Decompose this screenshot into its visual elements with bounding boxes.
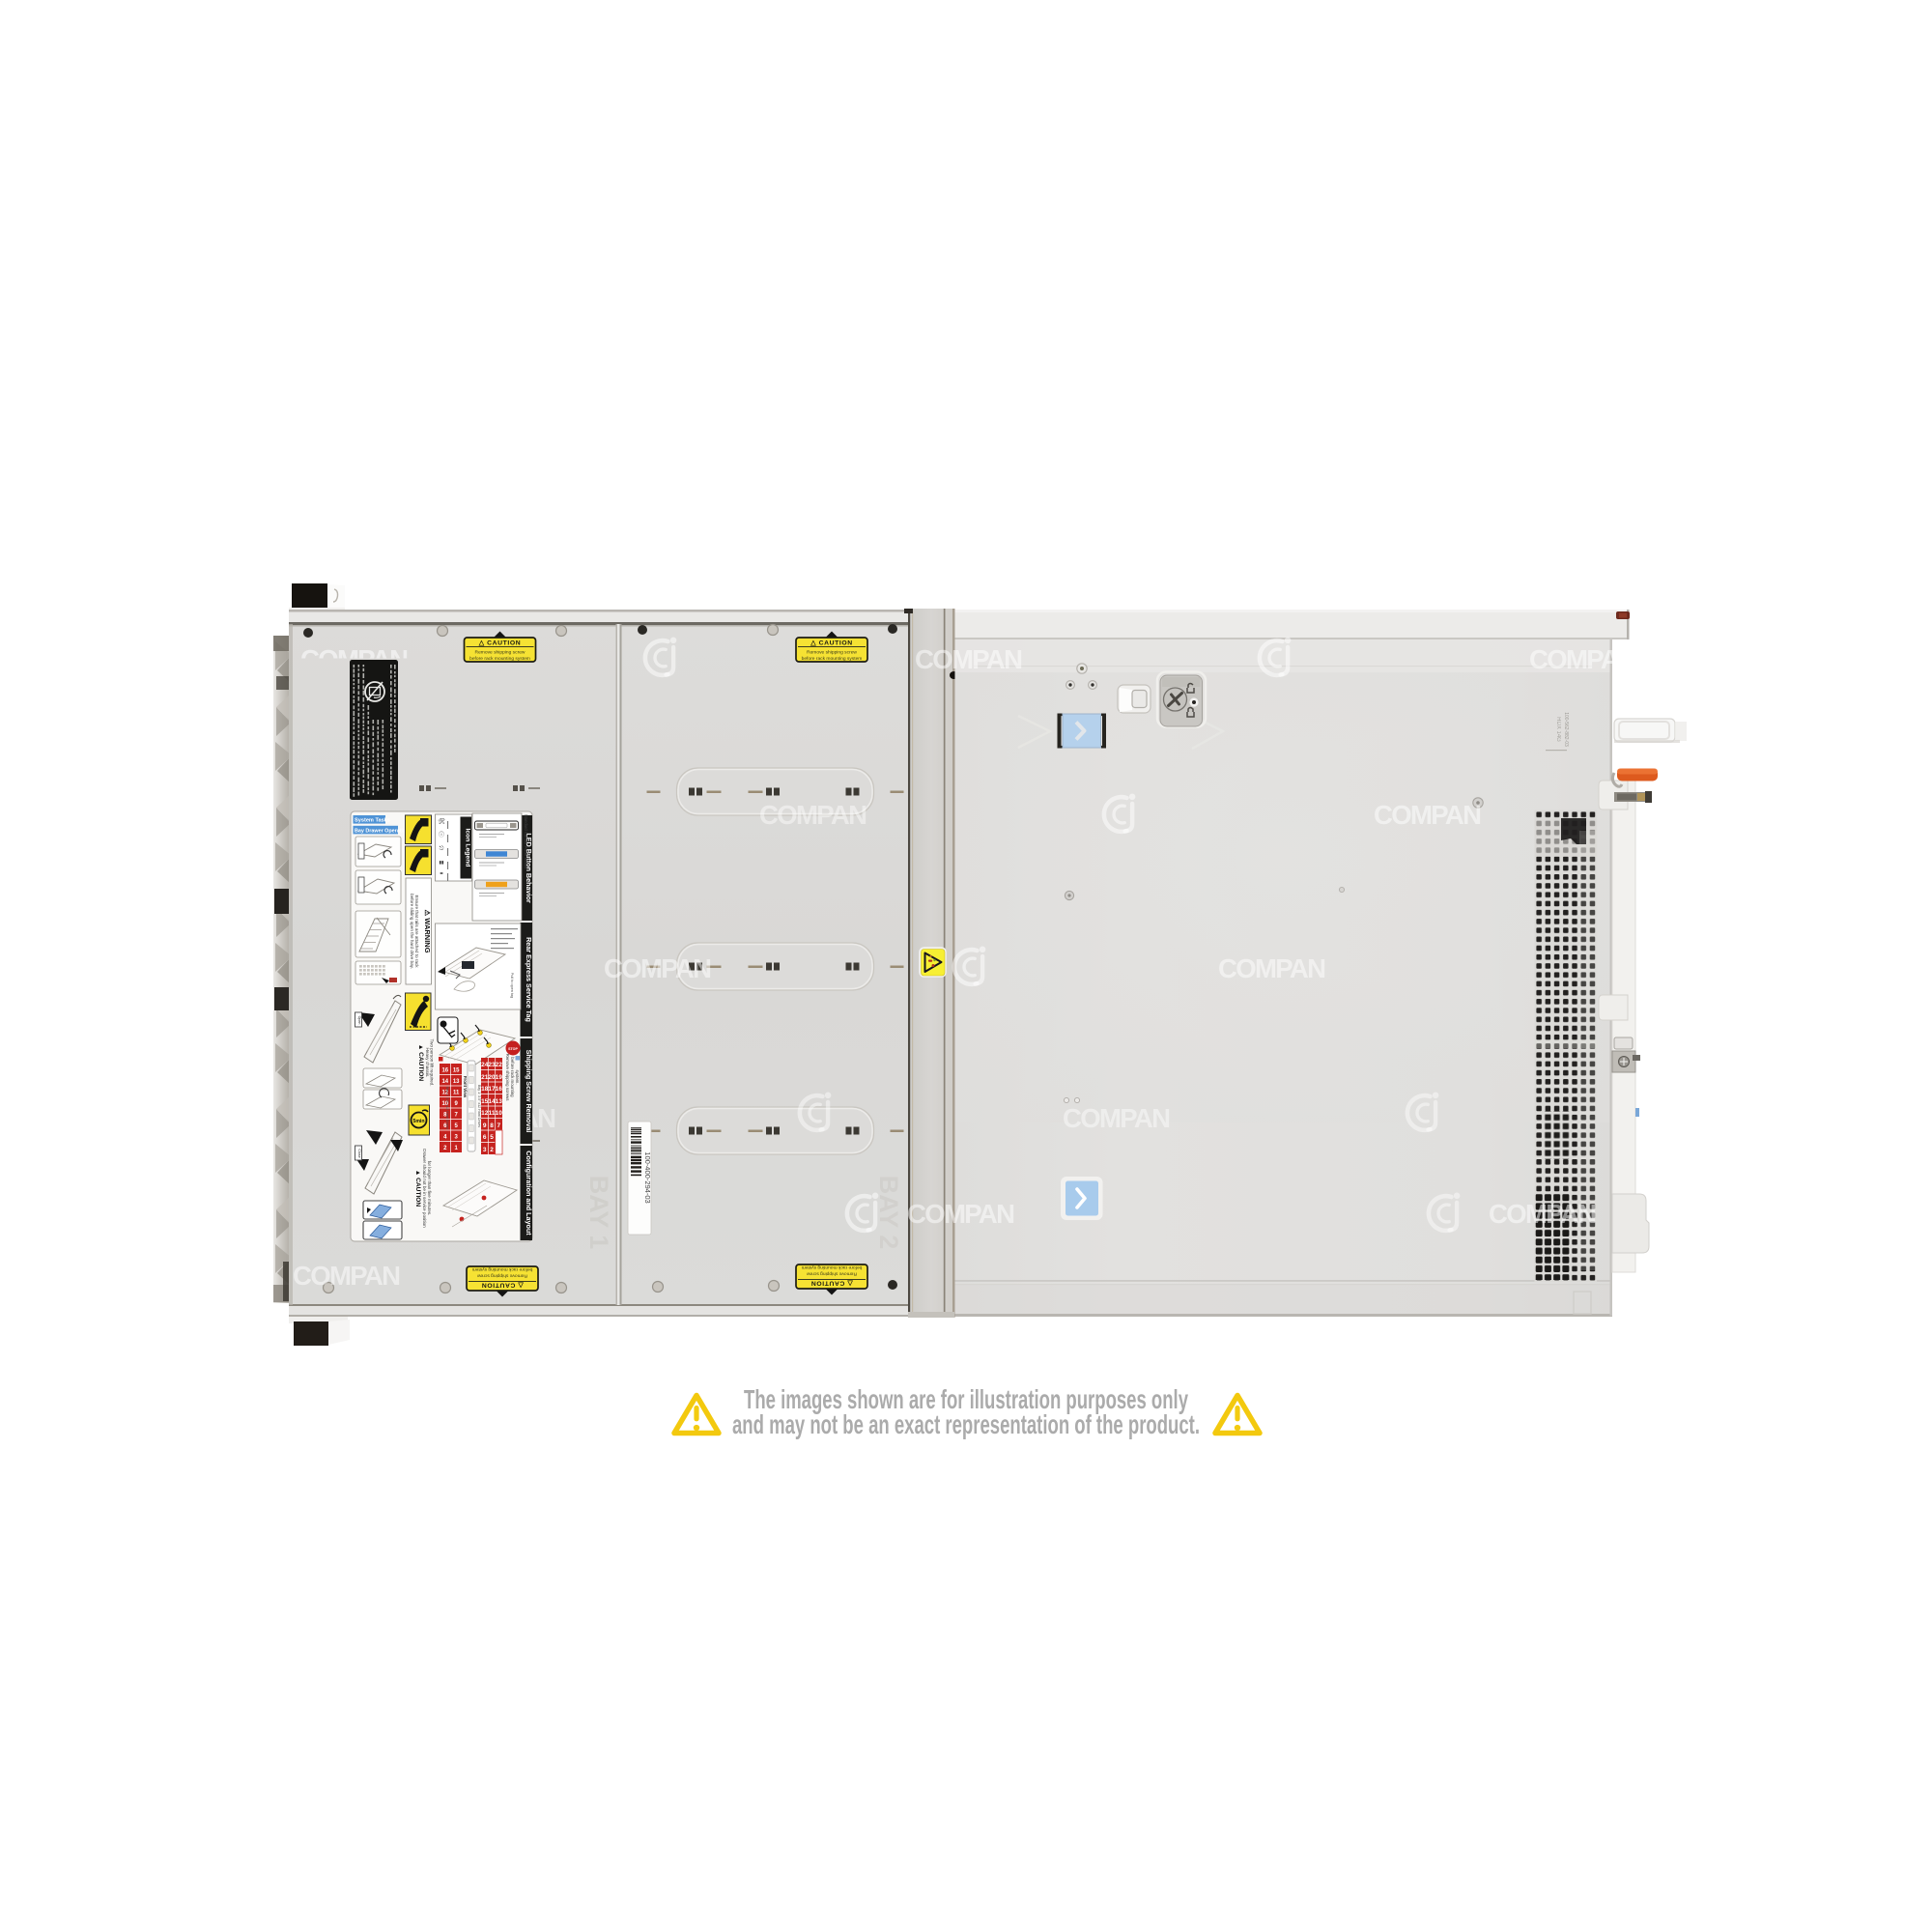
svg-text:⎋: ⎋ <box>440 845 444 852</box>
svg-text:6: 6 <box>483 1134 487 1141</box>
svg-text:△ CAUTION: △ CAUTION <box>810 1280 853 1287</box>
svg-text:22: 22 <box>496 1062 503 1068</box>
svg-text:Drawer should not be in servic: Drawer should not be in service position <box>422 1149 427 1228</box>
svg-text:5min: 5min <box>412 1119 424 1124</box>
svg-text:Remove shipping screw: Remove shipping screw <box>475 650 526 656</box>
svg-text:Configuration and Layout: Configuration and Layout <box>525 1151 533 1236</box>
svg-text:12: 12 <box>481 1110 489 1117</box>
svg-text:19: 19 <box>496 1074 503 1081</box>
svg-text:Rear Express Service Tag: Rear Express Service Tag <box>525 937 533 1022</box>
svg-text:13: 13 <box>453 1079 460 1085</box>
svg-text:COMPAN: COMPAN <box>1529 644 1638 674</box>
svg-text:COMPAN: COMPAN <box>293 1261 402 1291</box>
svg-text:▲ CAUTION: ▲ CAUTION <box>414 1170 421 1207</box>
svg-text:COMPAN: COMPAN <box>1218 953 1327 983</box>
svg-text:7: 7 <box>497 1122 500 1129</box>
svg-text:Front View: Front View <box>463 1076 468 1098</box>
svg-text:△ CAUTION: △ CAUTION <box>481 1282 524 1289</box>
svg-text:Standard Control Panel Status: Standard Control Panel Status <box>524 814 528 869</box>
svg-text:Remove shipping screws: Remove shipping screws <box>505 1054 510 1102</box>
svg-text:9: 9 <box>483 1122 487 1129</box>
svg-text:2: 2 <box>490 1147 494 1153</box>
svg-text:before rack mounting system: before rack mounting system <box>802 656 863 662</box>
svg-text:⚠ WARNING: ⚠ WARNING <box>423 909 432 952</box>
svg-text:11: 11 <box>453 1091 460 1096</box>
svg-text:Bay Drawer Operation: Bay Drawer Operation <box>355 828 410 834</box>
svg-text:System Tasks: System Tasks <box>355 818 390 824</box>
svg-text:⚭: ⚭ <box>439 871 443 877</box>
svg-text:ⓘ: ⓘ <box>439 831 444 838</box>
svg-text:△ CAUTION: △ CAUTION <box>810 640 852 647</box>
svg-text:for longer than five minutes.: for longer than five minutes. <box>427 1161 432 1216</box>
svg-text:Two person lift required.: Two person lift required. <box>430 1038 435 1086</box>
svg-text:STOP: STOP <box>508 1047 518 1051</box>
svg-text:14: 14 <box>441 1079 448 1085</box>
svg-text:before sliding open the hard d: before sliding open the hard drive bay. <box>410 894 414 969</box>
svg-text:13: 13 <box>496 1098 503 1105</box>
svg-text:COMPAN: COMPAN <box>759 800 868 830</box>
svg-text:Remove shipping screw: Remove shipping screw <box>807 1271 857 1277</box>
svg-text:Remove shipping screw: Remove shipping screw <box>807 650 857 656</box>
svg-text:100-400-294-03: 100-400-294-03 <box>643 1151 652 1203</box>
svg-text:COMPAN: COMPAN <box>915 644 1024 674</box>
svg-text:10: 10 <box>496 1110 503 1117</box>
svg-text:before rack mounting system: before rack mounting system <box>802 1264 863 1270</box>
svg-text:🛠: 🛠 <box>438 818 445 825</box>
svg-text:before rack mounting: before rack mounting <box>510 1057 515 1097</box>
svg-text:△ CAUTION: △ CAUTION <box>478 640 521 647</box>
svg-text:and may not be an exact repres: and may not be an exact representation o… <box>732 1409 1200 1439</box>
svg-text:Bay 2: 3.5" x12 Hard Drives: Bay 2: 3.5" x12 Hard Drives <box>445 1087 449 1129</box>
svg-text:▲ CAUTION: ▲ CAUTION <box>417 1044 424 1082</box>
svg-text:100-562-882-03: 100-562-882-03 <box>1563 712 1569 747</box>
svg-text:COMPAN: COMPAN <box>604 953 713 983</box>
svg-text:Heavy chassis.: Heavy chassis. <box>425 1048 430 1078</box>
svg-text:COMPAN: COMPAN <box>1063 1103 1172 1133</box>
svg-text:BAY 2: BAY 2 <box>874 1176 903 1250</box>
svg-text:3: 3 <box>483 1147 487 1153</box>
svg-text:system.: system. <box>515 1069 520 1084</box>
svg-text:15: 15 <box>453 1068 460 1074</box>
svg-text:HDX 14G: HDX 14G <box>1555 717 1561 742</box>
svg-text:5: 5 <box>490 1134 494 1141</box>
svg-text:Remove shipping screw: Remove shipping screw <box>477 1273 527 1279</box>
svg-text:16: 16 <box>496 1086 503 1093</box>
svg-text:Close: Close <box>357 1149 361 1157</box>
svg-text:COMPAN: COMPAN <box>1489 1199 1598 1229</box>
svg-text:8: 8 <box>490 1122 494 1129</box>
svg-text:Pull to open tag: Pull to open tag <box>510 973 514 998</box>
svg-text:COMPAN: COMPAN <box>1374 800 1483 830</box>
svg-text:COMPAN: COMPAN <box>907 1199 1016 1229</box>
svg-text:Icon Legend: Icon Legend <box>465 828 471 867</box>
svg-text:16: 16 <box>441 1068 448 1074</box>
svg-text:before rack mounting system: before rack mounting system <box>469 656 530 662</box>
svg-text:before rack mounting system: before rack mounting system <box>472 1266 533 1272</box>
svg-text:▮▮: ▮▮ <box>440 860 444 865</box>
svg-text:Shipping Screw Removal: Shipping Screw Removal <box>525 1050 533 1133</box>
svg-text:Open: Open <box>357 1016 361 1025</box>
svg-text:BAY 1: BAY 1 <box>584 1176 613 1250</box>
svg-text:Bay 1: 3.5" x12 Hard Drives: Bay 1: 3.5" x12 Hard Drives <box>477 1085 481 1127</box>
